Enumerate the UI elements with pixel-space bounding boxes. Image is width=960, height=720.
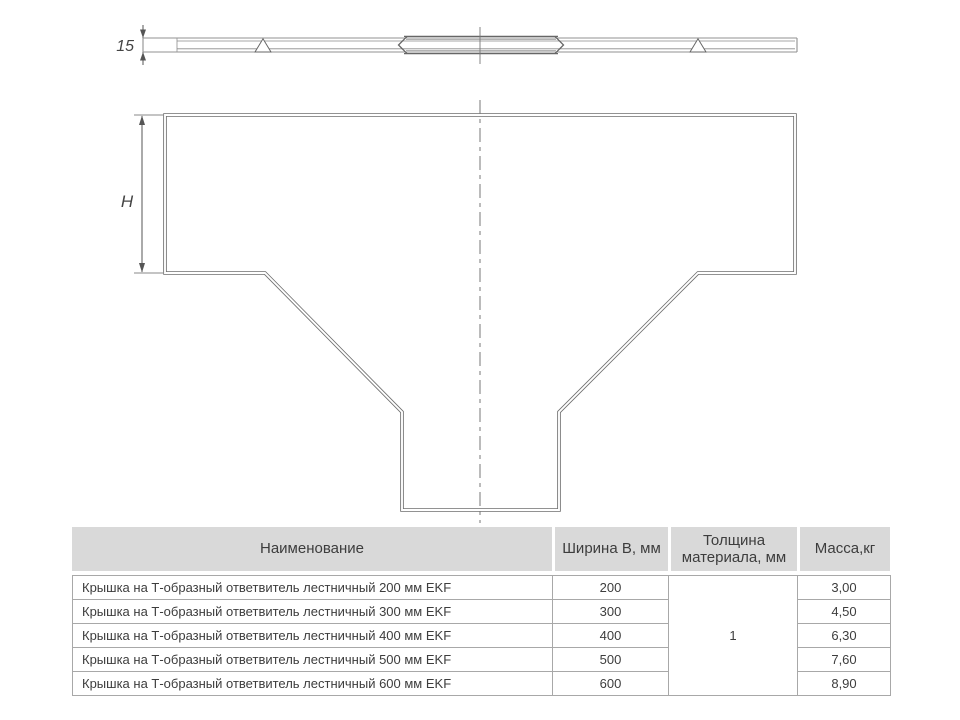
plan-view: H: [121, 100, 795, 523]
cover-outline: [165, 115, 795, 510]
bend-mark-right-icon: [555, 36, 564, 53]
product-width: 400: [553, 624, 669, 648]
arrow-down-icon: [139, 263, 145, 273]
product-mass: 6,30: [798, 624, 891, 648]
product-name: Крышка на Т-образный ответвитель лестнич…: [73, 576, 553, 600]
table-row: Крышка на Т-образный ответвитель лестнич…: [73, 576, 891, 600]
height-dimension-label: H: [121, 192, 134, 211]
product-width: 200: [553, 576, 669, 600]
product-name: Крышка на Т-образный ответвитель лестнич…: [73, 624, 553, 648]
arrow-up-icon: [139, 116, 145, 126]
bend-mark-left-icon: [399, 36, 408, 53]
arrow-up-icon: [140, 52, 146, 61]
spec-table: Крышка на Т-образный ответвитель лестнич…: [72, 575, 891, 696]
product-mass: 7,60: [798, 648, 891, 672]
product-width: 500: [553, 648, 669, 672]
side-view: 15: [116, 25, 797, 65]
material-thickness: 1: [669, 576, 798, 696]
side-view-stem-section: [399, 36, 564, 53]
header-mass: Масса,кг: [797, 527, 890, 571]
product-mass: 4,50: [798, 600, 891, 624]
product-width: 300: [553, 600, 669, 624]
header-thickness: Толщина материала, мм: [668, 527, 797, 571]
spec-table-header: Наименование Ширина В, мм Толщина матери…: [72, 527, 890, 571]
technical-drawing: 15: [0, 0, 960, 525]
product-mass: 3,00: [798, 576, 891, 600]
header-width: Ширина В, мм: [552, 527, 668, 571]
product-width: 600: [553, 672, 669, 696]
arrow-down-icon: [140, 30, 146, 39]
product-name: Крышка на Т-образный ответвитель лестнич…: [73, 600, 553, 624]
datasheet-page: 15: [0, 0, 960, 720]
product-mass: 8,90: [798, 672, 891, 696]
product-name: Крышка на Т-образный ответвитель лестнич…: [73, 648, 553, 672]
thickness-dimension-label: 15: [116, 38, 134, 55]
product-name: Крышка на Т-образный ответвитель лестнич…: [73, 672, 553, 696]
header-name: Наименование: [72, 527, 552, 571]
